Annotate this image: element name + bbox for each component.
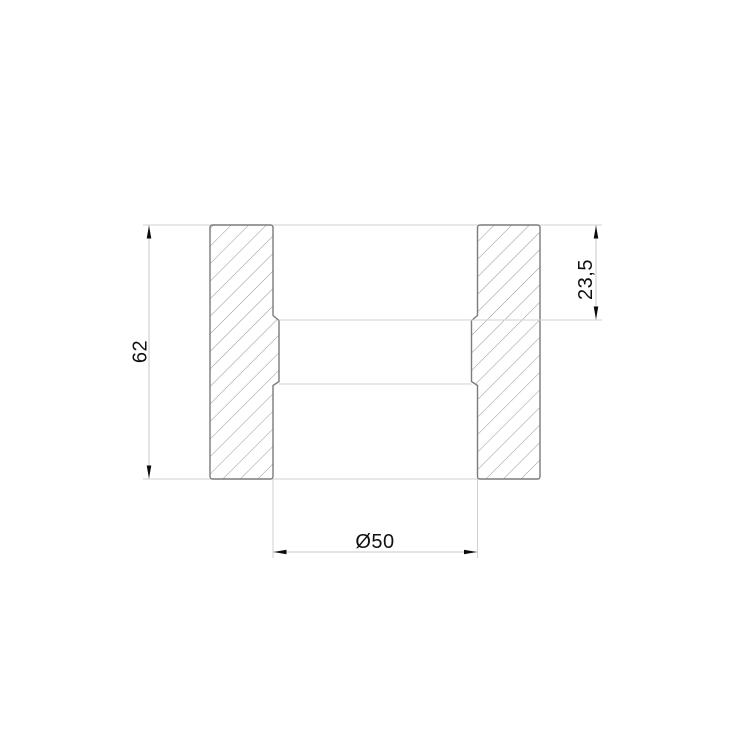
left-section-block xyxy=(210,225,279,479)
socket-depth-dimension-label: 23,5 xyxy=(575,259,597,300)
socket-depth-arrow-up-icon xyxy=(594,226,599,239)
right-section-block xyxy=(472,225,541,479)
bore-arrow-right-icon xyxy=(464,550,477,555)
socket-depth-arrow-down-icon xyxy=(594,307,599,320)
height-arrow-up-icon xyxy=(147,226,152,239)
bore-dimension-label: Ø50 xyxy=(355,531,394,553)
shoulder-lines xyxy=(279,320,602,384)
height-dimension-label: 62 xyxy=(130,340,152,363)
drawing-canvas: 62 23,5 Ø50 xyxy=(0,0,750,750)
bore-arrow-left-icon xyxy=(274,550,287,555)
technical-drawing: 62 23,5 Ø50 xyxy=(0,0,750,750)
height-arrow-down-icon xyxy=(147,466,152,479)
dimension-overall-height: 62 xyxy=(130,225,152,479)
dimension-socket-depth: 23,5 xyxy=(575,225,598,320)
dimension-bore-diameter: Ø50 xyxy=(273,479,478,558)
